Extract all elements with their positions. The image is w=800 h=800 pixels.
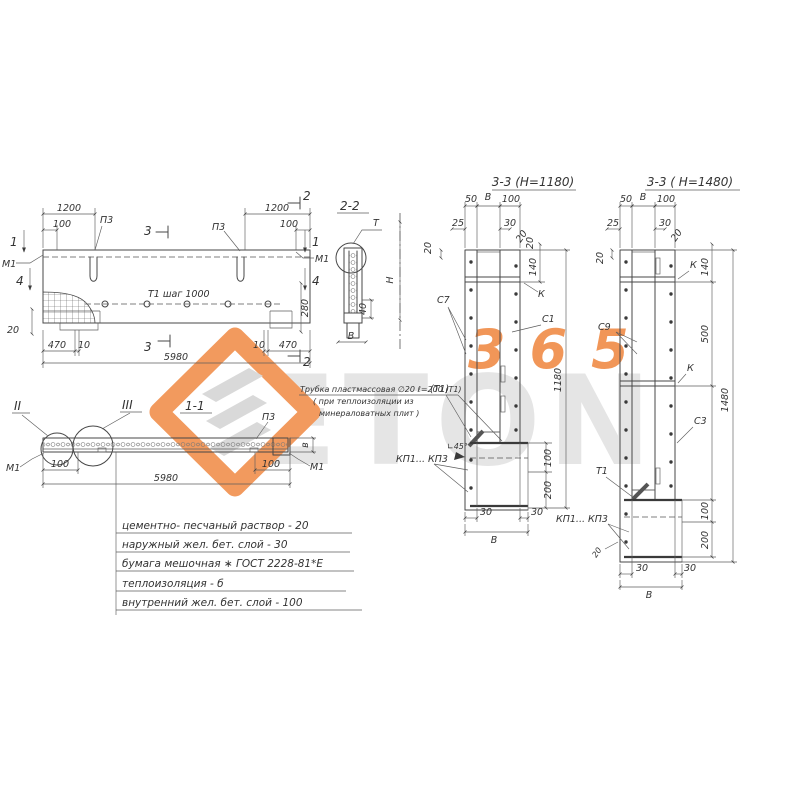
section-mark-1-right: 1 bbox=[312, 235, 320, 249]
dim-30-bl-b: 30 bbox=[636, 563, 648, 574]
label-c1: С1 bbox=[542, 314, 555, 325]
label-k1: К bbox=[690, 260, 698, 271]
dim-30-br: 30 bbox=[531, 507, 543, 518]
dim-20-left-b: 20 bbox=[595, 252, 606, 264]
dim-20: 20 bbox=[7, 325, 19, 336]
tube-note-line2: ( при теплоизоляции из bbox=[313, 397, 414, 406]
dim-5980-plan: 5980 bbox=[164, 352, 188, 363]
dim-50-b: 50 bbox=[620, 194, 632, 205]
dim-100-bottom-b: 100 bbox=[700, 502, 711, 520]
section-1-1-title: 1-1 bbox=[185, 399, 205, 413]
label-c7: С7 bbox=[437, 295, 450, 306]
engineering-drawing: ETON 365 Т1 шаг 1000 bbox=[0, 0, 800, 800]
dim-10-right: 10 bbox=[253, 340, 265, 351]
section-2-2: 2-2 Т Н 40 В bbox=[336, 199, 400, 350]
label-m1-11-right: М1 bbox=[310, 462, 324, 473]
dim-b-bottom-b: В bbox=[646, 590, 653, 601]
detail-mark-ii: II bbox=[14, 399, 22, 413]
dim-30-top: 30 bbox=[504, 218, 516, 229]
section-mark-4-left: 4 bbox=[16, 274, 24, 288]
label-k2: К bbox=[687, 363, 695, 374]
label-p3-11: П3 bbox=[262, 412, 275, 423]
layer-note-line: цементно- песчаный раствор - 20 bbox=[122, 520, 309, 532]
detail-mark-iii: III bbox=[122, 398, 133, 412]
mark-t: Т bbox=[373, 218, 380, 229]
dim-500: 500 bbox=[700, 325, 711, 343]
dim-30-bl: 30 bbox=[480, 507, 492, 518]
tube-note-line3: минераловатных плит ) bbox=[319, 409, 419, 418]
dim-140: 140 bbox=[528, 258, 539, 276]
plan-dimensions: 1200 100 1200 100 П3 П3 3 3 2 2 1 4 1 4 bbox=[2, 189, 329, 369]
label-c9: С9 bbox=[598, 322, 611, 333]
dim-5980-11: 5980 bbox=[154, 473, 178, 484]
dim-h: Н bbox=[385, 276, 396, 283]
dim-25: 25 bbox=[452, 218, 464, 229]
dim-1200-left: 1200 bbox=[57, 203, 81, 214]
dim-100-11-left: 100 bbox=[51, 459, 69, 470]
section-3-3-1180-title: 3-3 (Н=1180) bbox=[492, 175, 574, 189]
layer-note-line: наружный жел. бет. слой - 30 bbox=[122, 539, 288, 551]
dim-1480-total: 1480 bbox=[720, 388, 731, 412]
dim-20-angle-b: 20 bbox=[669, 227, 685, 243]
section-mark-2-bottom: 2 bbox=[303, 355, 311, 369]
dim-100-right: 100 bbox=[280, 219, 298, 230]
section-mark-2-top: 2 bbox=[303, 189, 311, 203]
plan-view: Т1 шаг 1000 1200 100 1200 100 П3 П3 3 3 … bbox=[2, 189, 329, 369]
dim-20-corner-b: 20 bbox=[590, 546, 603, 560]
dim-50: 50 bbox=[465, 194, 477, 205]
label-p3-right: П3 bbox=[212, 222, 225, 233]
watermark: ETON 365 bbox=[159, 318, 658, 494]
label-t1: Т1 bbox=[596, 466, 608, 477]
label-m1-right: М1 bbox=[315, 254, 329, 265]
label-c3: С3 bbox=[694, 416, 707, 427]
dim-200: 200 bbox=[543, 481, 554, 499]
dim-25-b: 25 bbox=[607, 218, 619, 229]
dim-470-right: 470 bbox=[279, 340, 297, 351]
dim-100-top-b: 100 bbox=[657, 194, 675, 205]
dim-b-11: в bbox=[300, 442, 311, 448]
dim-470-left: 470 bbox=[48, 340, 66, 351]
dim-1200-right: 1200 bbox=[265, 203, 289, 214]
label-kp1-kp3-b: КП1... КП3 bbox=[556, 514, 608, 525]
dim-100-bottom: 100 bbox=[543, 449, 554, 467]
section-mark-1-left: 1 bbox=[10, 235, 18, 249]
label-m1-left: М1 bbox=[2, 259, 16, 270]
dim-140-b: 140 bbox=[700, 258, 711, 276]
dim-b-bottom: В bbox=[491, 535, 498, 546]
label-t1-paren: (Т1) bbox=[430, 384, 449, 395]
dim-100-11-right: 100 bbox=[262, 459, 280, 470]
layer-note-line: внутренний жел. бет. слой - 100 bbox=[122, 597, 303, 609]
dim-30-br-b: 30 bbox=[684, 563, 696, 574]
dim-200-b: 200 bbox=[700, 531, 711, 549]
dim-10-left: 10 bbox=[78, 340, 90, 351]
label-kp1-kp3: КП1... КП3 bbox=[396, 454, 448, 465]
dim-280: 280 bbox=[300, 299, 311, 317]
dim-20-left: 20 bbox=[423, 242, 434, 254]
section-mark-4-right: 4 bbox=[312, 274, 320, 288]
dim-30-top-b: 30 bbox=[659, 218, 671, 229]
section-3-3-1480-title: 3-3 ( Н=1480) bbox=[647, 175, 733, 189]
layer-note-line: бумага мешочная ∗ ГОСТ 2228-81*Е bbox=[122, 558, 323, 570]
dim-40: 40 bbox=[358, 303, 369, 315]
layer-note-line: теплоизоляция - б bbox=[122, 578, 224, 590]
label-k: К bbox=[538, 289, 546, 300]
dim-1180-total: 1180 bbox=[553, 368, 564, 392]
dim-b-top-b: В bbox=[640, 192, 647, 203]
label-angle-45: ∟45° bbox=[447, 442, 468, 451]
dim-b-top: В bbox=[485, 192, 492, 203]
section-2-2-title: 2-2 bbox=[340, 199, 360, 213]
dim-20-right: 20 bbox=[525, 237, 536, 249]
dim-100-left: 100 bbox=[53, 219, 71, 230]
section-mark-3-bottom: 3 bbox=[144, 340, 152, 354]
label-p3-left: П3 bbox=[100, 215, 113, 226]
dim-b-22: В bbox=[348, 331, 355, 342]
plan-row-note: Т1 шаг 1000 bbox=[148, 289, 210, 300]
label-m1-11-left: М1 bbox=[6, 463, 20, 474]
section-mark-3-top: 3 bbox=[144, 224, 152, 238]
dim-100-top: 100 bbox=[502, 194, 520, 205]
